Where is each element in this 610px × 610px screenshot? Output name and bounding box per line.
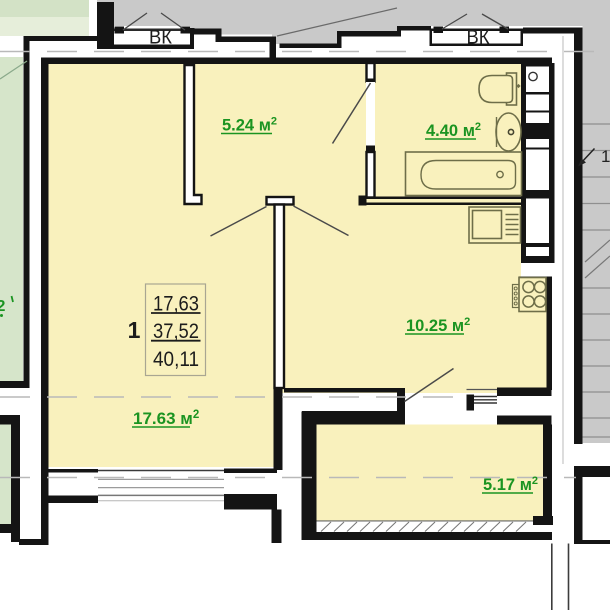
- svg-text:ВК: ВК: [149, 28, 172, 49]
- svg-text:37,52: 37,52: [153, 319, 199, 343]
- svg-text:5.24 м2: 5.24 м2: [222, 116, 277, 135]
- svg-text:1: 1: [128, 317, 141, 343]
- svg-text:17.63 м2: 17.63 м2: [133, 409, 199, 428]
- svg-text:2: 2: [0, 298, 6, 315]
- svg-text:5.17 м2: 5.17 м2: [483, 475, 538, 494]
- svg-text:4.40 м2: 4.40 м2: [426, 121, 481, 140]
- svg-text:17,63: 17,63: [153, 292, 199, 316]
- svg-text:40,11: 40,11: [153, 347, 199, 371]
- svg-text:10.25 м2: 10.25 м2: [406, 316, 470, 335]
- svg-text:ВК: ВК: [467, 28, 490, 49]
- svg-text:1: 1: [601, 147, 610, 166]
